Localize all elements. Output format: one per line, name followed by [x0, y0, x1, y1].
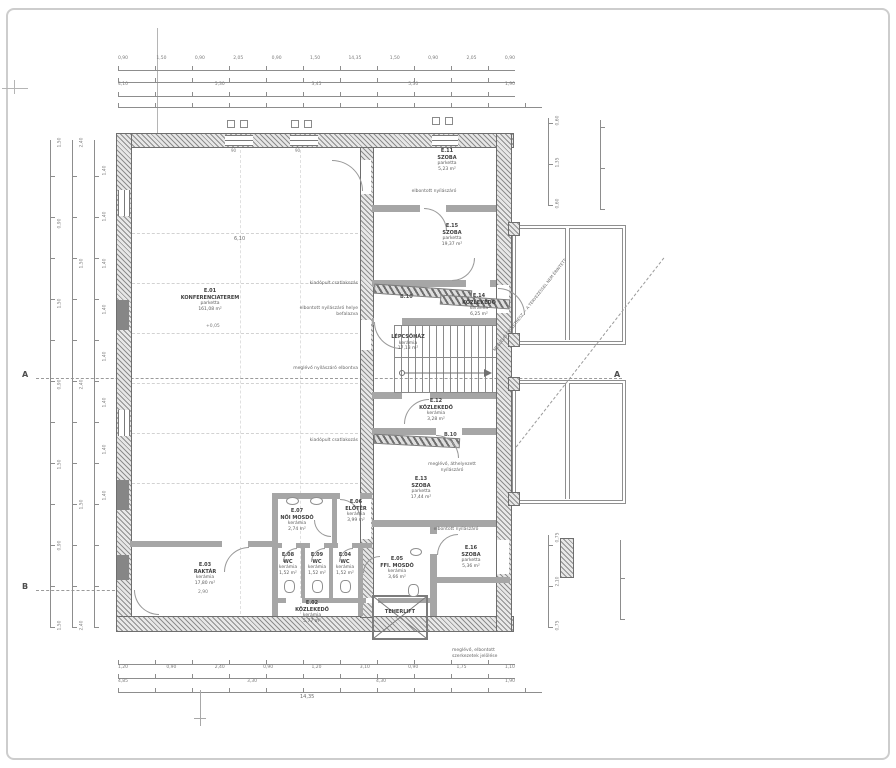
room-label-e15: E.15SZOBAparketta19,37 m²: [428, 223, 476, 248]
room-label-e01: E.01KONFERENCIATEREMparketta161,08 m²: [165, 288, 255, 313]
vent-symbol-icon: [304, 120, 312, 128]
wall-partition: [372, 520, 496, 527]
wall-pier: [508, 222, 520, 236]
freight-elevator-symbol: [372, 595, 428, 640]
room-label-e02: E.02KÖZLEKEDŐkerámia5,77 m²: [282, 600, 342, 625]
window-opening: [118, 410, 130, 436]
wall-pier: [508, 333, 520, 347]
dimension-numbers-bottom: 1,200,902,400,901,203,100,901,751,10: [118, 665, 515, 670]
door-opening: [466, 280, 490, 287]
annotation: kiadópult csatlakozás: [286, 281, 358, 287]
dimension-chain: [118, 688, 542, 693]
guide-horizontal: [132, 483, 358, 484]
vent-symbol-icon: [227, 120, 235, 128]
wall-partition: [358, 543, 363, 616]
window-opening: [225, 135, 253, 146]
vent-symbol-icon: [432, 117, 440, 125]
dimension-numbers-top2: 4,105,303,455,301,90: [118, 82, 515, 87]
legend-note: meglévő, elbontott szerkezetek jelölése: [452, 648, 522, 659]
dim-sill: 90: [231, 148, 236, 153]
floor-plan: A A B: [0, 0, 896, 768]
dimension-numbers-left2: 2,401,502,401,502,40: [77, 140, 87, 628]
centerline-bottom: [200, 690, 201, 726]
annotation: meglévő, áthelyezett nyílászáró: [420, 462, 484, 473]
level-mark: +0,05: [206, 324, 220, 329]
dimension-numbers-right-top: 0,601,350,60: [553, 118, 563, 206]
dimension-chain: [600, 120, 605, 210]
dimension-chain: [118, 103, 542, 108]
window-opening: [290, 135, 318, 146]
wall-pier: [117, 480, 129, 510]
annotation: meglévő nyílászáró elbontva: [282, 366, 358, 372]
guide-horizontal: [132, 383, 358, 384]
dimension-chain: [118, 92, 515, 97]
washbasin-icon: [410, 548, 422, 556]
room-label-e06: E.06ELŐTÉRkerámia3,99 m²: [338, 499, 374, 524]
toilet-icon: [340, 580, 351, 593]
annotation: elbontott nyílászáró: [404, 189, 464, 195]
door-opening: [430, 534, 437, 554]
section-marker-a-left: A: [22, 370, 28, 379]
dimension-numbers-right-bottom: 0,752,100,75: [553, 535, 563, 628]
annotation: elbontott nyílászáró helye befalazva: [278, 306, 358, 317]
room-label-lift: TEHERLIFT: [376, 609, 424, 616]
dimension-numbers-left: 1,500,901,500,901,500,901,50: [55, 140, 65, 628]
room-label-e09: E.09WCkerámia1,52 m²: [305, 552, 329, 577]
vent-symbol-icon: [240, 120, 248, 128]
washbasin-icon: [286, 497, 299, 505]
level-marks: 1,401,401,401,401,401,401,401,40: [98, 168, 112, 498]
door-opening: [361, 320, 371, 350]
vent-symbol-icon: [445, 117, 453, 125]
room-label-e07: E.07NŐI MOSDÓkerámia2,74 m²: [271, 508, 323, 533]
room-label-e16: E.16SZOBAparketta5,36 m²: [450, 545, 492, 570]
room-label-e14: E.14KÖZLEKEDŐkerámia6,25 m²: [452, 293, 506, 318]
annotation: elbontott nyílászáró: [428, 527, 484, 533]
room-label-e03: E.03RAKTÁRkerámia17,80 m²: [175, 562, 235, 587]
dimension-chain: [118, 66, 515, 71]
section-marker-b-left: B: [22, 582, 28, 591]
dimension-chain: [620, 540, 625, 620]
wall-pier: [117, 555, 129, 580]
beam-marker-b10: B.10: [400, 294, 413, 300]
toilet-icon: [408, 584, 419, 597]
room-label-stairhall: LÉPCSŐHÁZkerámia17,13 m²: [382, 334, 434, 352]
wall-partition: [332, 493, 337, 545]
dimension-total-bottom: 14,35: [300, 694, 314, 700]
existing-wall: [565, 228, 570, 340]
margin-mark: [2, 88, 28, 89]
guide-horizontal: [132, 233, 358, 234]
beam-marker-b10: B.10: [444, 432, 457, 438]
room-label-e12: E.12KÖZLEKEDŐkerámia3,28 m²: [410, 398, 462, 423]
room-label-e05: E.05FFI. MOSDÓkerámia3,66 m²: [370, 556, 424, 581]
section-marker-a-right: A: [614, 370, 620, 379]
window-opening: [432, 135, 458, 146]
vent-symbol-icon: [291, 120, 299, 128]
existing-wall: [565, 383, 570, 499]
wall-opening: [497, 540, 509, 574]
wall-pier: [508, 377, 520, 391]
washbasin-icon: [310, 497, 323, 505]
room-label-e11: E.11SZOBAparketta5,23 m²: [424, 148, 470, 173]
dimension-numbers-top: 0,901,500,902,050,901,5014,351,500,902,0…: [118, 56, 515, 61]
margin-mark: [14, 80, 15, 94]
guide-horizontal: [132, 433, 358, 434]
room-label-e13: E.13SZOBAparketta17,44 m²: [395, 476, 447, 501]
window-opening: [118, 190, 130, 216]
dim-raktar: 2,90: [198, 590, 208, 595]
room-label-e04: E.04WCkerámia1,52 m²: [333, 552, 357, 577]
dim-sill: 90: [295, 148, 300, 153]
wall-partition: [437, 577, 510, 583]
room-label-e08: E.08WCkerámia1,52 m²: [276, 552, 300, 577]
door-opening: [222, 541, 248, 547]
wall-pier: [117, 300, 129, 330]
wall-pier: [508, 492, 520, 506]
centerline-tick: [194, 718, 206, 719]
dimension-numbers-bottom2: 4,853,304,301,90: [118, 679, 515, 684]
dimension-chain: [94, 140, 99, 628]
staircase-walk-arrow: [396, 362, 496, 384]
toilet-icon: [312, 580, 323, 593]
toilet-icon: [284, 580, 295, 593]
dim-room-width: 6,10: [234, 236, 245, 242]
staircase-landing-line: [394, 357, 496, 358]
guide-horizontal: [132, 333, 358, 334]
annotation: kiadópult csatlakozás: [286, 438, 358, 444]
wall-partition: [130, 541, 272, 547]
